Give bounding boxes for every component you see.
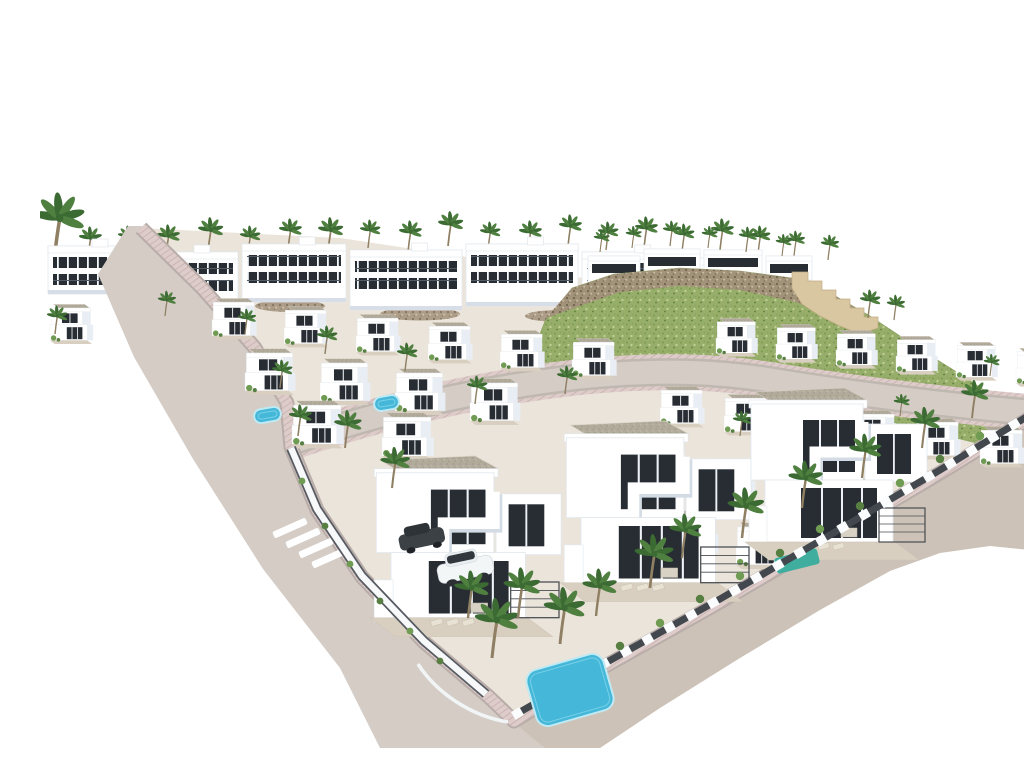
architectural-render: Aerial 3D architectural rendering of a h… [40,16,1024,748]
villa [500,330,545,371]
villa [572,338,617,379]
villa [356,314,401,355]
villa [836,330,878,368]
apartment-block [242,237,346,302]
villa [1016,348,1024,386]
villa [320,359,370,405]
apartment-block [350,243,462,310]
villa [776,324,818,362]
villa [660,386,705,427]
villa [395,369,445,415]
villa [896,336,938,374]
apartment-block [466,237,578,306]
render-canvas [40,16,1024,748]
dining-set [661,568,678,577]
villa [428,322,473,363]
villa [284,306,329,347]
villa [716,318,758,356]
